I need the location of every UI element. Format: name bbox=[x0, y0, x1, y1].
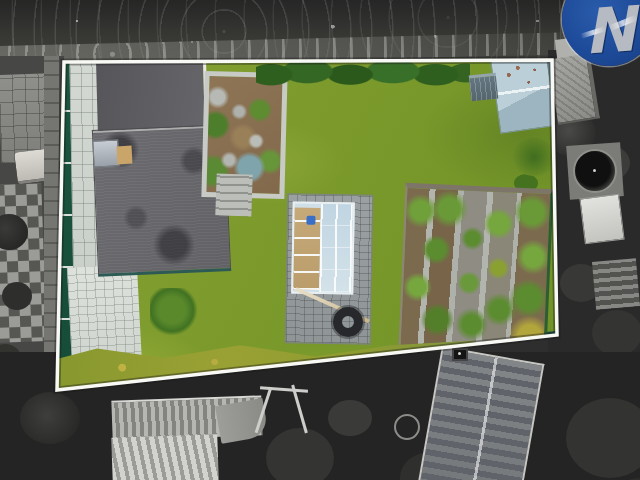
lawn-bush bbox=[150, 288, 198, 336]
compost-box bbox=[469, 73, 499, 102]
neighbor-pergola bbox=[592, 258, 640, 310]
cold-frame-glass-panels bbox=[319, 204, 353, 293]
neighbor-greenhouse bbox=[418, 346, 545, 480]
stone-steps bbox=[215, 173, 252, 216]
coiled-garden-hose bbox=[333, 307, 363, 337]
aerial-property-photo: N bbox=[0, 0, 640, 480]
ribbed-roof-lower-face bbox=[111, 434, 219, 480]
neighbor-trees-bottom bbox=[20, 392, 80, 444]
house-upper-roof bbox=[96, 61, 208, 136]
chimney bbox=[92, 139, 119, 167]
bushes-near-shed bbox=[512, 138, 556, 176]
hedge-top bbox=[256, 56, 470, 90]
vegetable-garden-beds bbox=[398, 183, 553, 353]
neighbor-chimney-cap bbox=[458, 352, 461, 355]
blue-watering-can bbox=[306, 216, 315, 225]
neighbor-white-canopy bbox=[579, 194, 624, 245]
trampoline-ring bbox=[394, 414, 420, 440]
checkerboard-pavers bbox=[0, 183, 47, 343]
garden-shed bbox=[490, 52, 560, 134]
chimney-wood-box bbox=[117, 146, 133, 165]
pool-highlight bbox=[593, 169, 596, 172]
cold-frame-greenhouse bbox=[291, 201, 355, 294]
swing-frame-pole bbox=[255, 387, 273, 434]
swing-frame bbox=[258, 380, 312, 434]
